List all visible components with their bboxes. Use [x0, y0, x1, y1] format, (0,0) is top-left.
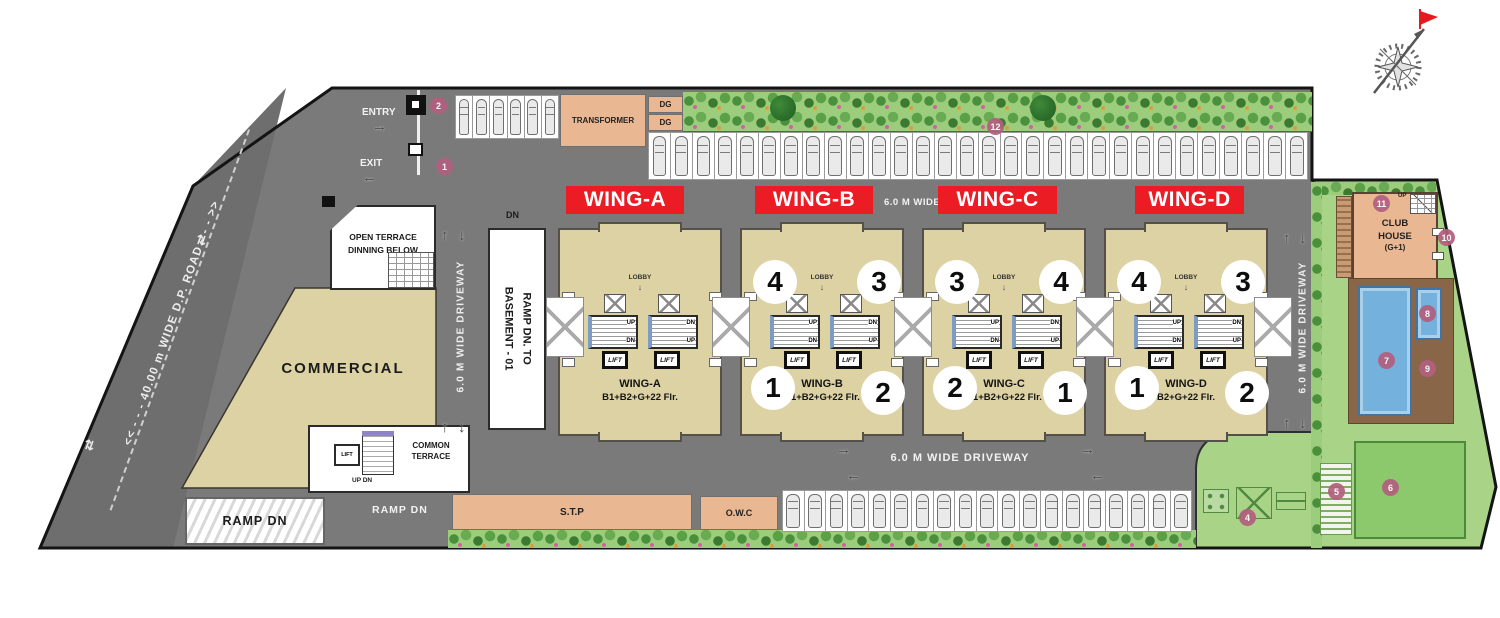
- gate-inner: [412, 101, 419, 108]
- wall-block: [322, 196, 335, 207]
- corridor-bridge: [1254, 297, 1292, 357]
- car-icon: [1045, 494, 1059, 528]
- parking-slot: [649, 133, 671, 179]
- car-icon: [1048, 136, 1062, 176]
- marker-4: 4: [1239, 509, 1256, 526]
- tree-icon: [770, 95, 796, 121]
- car-icon: [1153, 494, 1167, 528]
- stair-up-label: UP: [627, 320, 635, 326]
- traffic-arrow-icon: ↑: [441, 228, 449, 243]
- window-box: [744, 358, 757, 367]
- owc-label: O.W.C: [726, 508, 753, 518]
- compass-rose-icon: [1368, 5, 1454, 105]
- stair-up-label: UP: [991, 320, 999, 326]
- marker-5: 5: [1328, 483, 1345, 500]
- stair-landing-band: [362, 431, 394, 436]
- marker-7: 7: [1378, 352, 1395, 369]
- parking-slot: [1220, 133, 1242, 179]
- club-deck-hatch: [1336, 196, 1352, 278]
- marker-6: 6: [1382, 479, 1399, 496]
- parking-slot: [1149, 491, 1171, 531]
- driveway-label-bottom: 6.0 M WIDE DRIVEWAY: [855, 452, 1065, 464]
- window-box: [926, 358, 939, 367]
- parking-slot: [998, 491, 1020, 531]
- car-icon: [718, 136, 732, 176]
- car-icon: [762, 136, 776, 176]
- club-house-line-3: (G+1): [1385, 243, 1406, 254]
- parking-slot: [957, 133, 979, 179]
- parking-slot: [1041, 491, 1063, 531]
- unit-number-1: 1: [1115, 366, 1159, 410]
- lift-shaft-icon: [1204, 294, 1226, 313]
- wing-banner-wing-c: WING-C: [938, 186, 1057, 214]
- parking-slot: [715, 133, 737, 179]
- parking-bay-entry: [455, 95, 559, 139]
- unit-number-2: 2: [1225, 371, 1269, 415]
- club-house-line-2: HOUSE: [1378, 231, 1412, 244]
- car-icon: [1109, 494, 1123, 528]
- exit-label: EXIT: [360, 158, 382, 169]
- staircase-right: DNUP: [1194, 315, 1244, 349]
- parking-slot: [955, 491, 977, 531]
- car-icon: [1026, 136, 1040, 176]
- club-stair: [1410, 194, 1436, 214]
- traffic-arrow-icon: ↑: [441, 420, 449, 435]
- traffic-arrow-icon: ↓: [1299, 416, 1307, 431]
- parking-slot: [473, 96, 490, 138]
- common-terrace-label: COMMON TERRACE: [398, 440, 464, 462]
- car-icon: [1004, 136, 1018, 176]
- commercial-label: COMMERCIAL: [278, 360, 408, 377]
- lift-shaft-icon: [604, 294, 626, 313]
- stair-up-label: UP: [687, 338, 695, 344]
- lift-shaft-icon: [658, 294, 680, 313]
- parking-slot: [1044, 133, 1066, 179]
- wing-building-wing-d: LOBBY↓UPDNDNUPLIFTLIFTWING-DB2+G+22 Flr.…: [1104, 228, 1268, 436]
- ramp-to-basement-label: RAMP DN. TO BASEMENT - 01: [499, 234, 534, 424]
- car-icon: [1246, 136, 1260, 176]
- unit-number-4: 4: [753, 260, 797, 304]
- lift-box: LIFT: [966, 351, 992, 369]
- parking-slot: [1242, 133, 1264, 179]
- parking-slot: [934, 491, 956, 531]
- tree-icon: [1030, 95, 1056, 121]
- parking-slot: [490, 96, 507, 138]
- open-lawn: [1354, 441, 1466, 539]
- parking-slot: [869, 133, 891, 179]
- stair-dn-label: DN: [990, 338, 999, 344]
- car-icon: [851, 494, 865, 528]
- car-icon: [1158, 136, 1172, 176]
- stp-box: S.T.P: [452, 494, 692, 530]
- lift-box: LIFT: [784, 351, 810, 369]
- car-icon: [1092, 136, 1106, 176]
- parking-slot: [1001, 133, 1023, 179]
- parking-slot: [935, 133, 957, 179]
- traffic-arrow-icon: ←: [362, 170, 377, 185]
- stair-dn-label: DN: [626, 338, 635, 344]
- stair-dn-label: DN: [808, 338, 817, 344]
- corridor-bridge: [894, 297, 932, 357]
- car-icon: [1202, 136, 1216, 176]
- lift-shaft-icon: [840, 294, 862, 313]
- parking-slot: [759, 133, 781, 179]
- car-icon: [527, 99, 538, 135]
- parking-slot: [693, 133, 715, 179]
- parking-slot: [1106, 491, 1128, 531]
- car-icon: [1066, 494, 1080, 528]
- parking-slot: [1286, 133, 1307, 179]
- car-icon: [872, 136, 886, 176]
- car-icon: [1290, 136, 1304, 176]
- parking-slot: [848, 491, 870, 531]
- up-dn-label: UP DN: [352, 477, 372, 484]
- parking-slot: [912, 491, 934, 531]
- stair-dn-label: DN: [1172, 338, 1181, 344]
- lobby-down-arrow-icon: ↓: [560, 282, 720, 292]
- car-icon: [1224, 136, 1238, 176]
- unit-number-4: 4: [1117, 260, 1161, 304]
- common-terrace-line-1: COMMON: [412, 441, 449, 450]
- window-box: [1108, 358, 1121, 367]
- traffic-arrow-icon: →: [1080, 442, 1095, 457]
- stair-dn-label: DN: [1050, 320, 1059, 326]
- parking-slot: [525, 96, 542, 138]
- staircase-left: UPDN: [770, 315, 820, 349]
- car-icon: [938, 136, 952, 176]
- parking-slot: [1022, 133, 1044, 179]
- parking-slot: [781, 133, 803, 179]
- dg-box-1: DG: [648, 96, 683, 113]
- stair-up-label: UP: [1233, 338, 1241, 344]
- lift-box: LIFT: [654, 351, 680, 369]
- parking-slot: [977, 491, 999, 531]
- parking-slot: [1171, 491, 1192, 531]
- traffic-arrow-icon: ↑: [1283, 416, 1291, 431]
- lift-box: LIFT: [602, 351, 628, 369]
- parking-slot: [671, 133, 693, 179]
- car-icon: [830, 494, 844, 528]
- club-house-line-1: CLUB: [1382, 218, 1408, 231]
- car-icon: [510, 99, 521, 135]
- car-icon: [894, 494, 908, 528]
- stair-dn-label: DN: [686, 320, 695, 326]
- unit-number-2: 2: [861, 371, 905, 415]
- dg-label: DG: [660, 100, 672, 109]
- traffic-arrow-icon: ↓: [1299, 231, 1307, 246]
- car-icon: [959, 494, 973, 528]
- south-planting-strip: [448, 530, 1196, 548]
- parking-slot: [847, 133, 869, 179]
- play-equipment-icon: [1203, 489, 1229, 513]
- window-box: [1255, 358, 1268, 367]
- parking-slot: [783, 491, 805, 531]
- wing-floors-label: B1+B2+G+22 Flr.: [560, 392, 720, 403]
- lift-label: LIFT: [341, 452, 353, 458]
- staircase-right: DNUP: [830, 315, 880, 349]
- stp-label: S.T.P: [560, 507, 584, 518]
- parking-slot: [1110, 133, 1132, 179]
- wing-building-wing-c: LOBBY↓UPDNDNUPLIFTLIFTWING-CB1+B2+G+22 F…: [922, 228, 1086, 436]
- traffic-arrow-icon: ↑: [1283, 231, 1291, 246]
- dg-box-2: DG: [648, 114, 683, 131]
- wing-banner-wing-b: WING-B: [755, 186, 873, 214]
- corridor-bridge: [546, 297, 584, 357]
- marker-2: 2: [430, 97, 447, 114]
- stair-up-label: UP: [809, 320, 817, 326]
- lift-box: LIFT: [1018, 351, 1044, 369]
- parking-slot: [1066, 133, 1088, 179]
- parking-slot: [1128, 491, 1150, 531]
- parking-slot: [979, 133, 1001, 179]
- parking-slot: [542, 96, 558, 138]
- lift-box-terrace: LIFT: [334, 444, 360, 466]
- unit-number-3: 3: [935, 260, 979, 304]
- stair-up-label: UP: [1173, 320, 1181, 326]
- car-icon: [1114, 136, 1128, 176]
- car-icon: [916, 136, 930, 176]
- parking-slot: [805, 491, 827, 531]
- common-terrace-line-2: TERRACE: [412, 452, 451, 461]
- unit-number-1: 1: [1043, 371, 1087, 415]
- car-icon: [459, 99, 470, 135]
- stair-dn-label: DN: [868, 320, 877, 326]
- club-tab: [1432, 252, 1444, 260]
- wing-banner-wing-d: WING-D: [1135, 186, 1244, 214]
- parking-slot: [891, 491, 913, 531]
- traffic-arrow-icon: ↓: [458, 420, 466, 435]
- wing-name-label: WING-A: [560, 378, 720, 390]
- staircase-left: UPDN: [1134, 315, 1184, 349]
- compass-arrowhead: [1414, 29, 1424, 39]
- window-box: [891, 358, 904, 367]
- car-icon: [476, 99, 487, 135]
- lift-box: LIFT: [836, 351, 862, 369]
- parking-slot: [1063, 491, 1085, 531]
- parking-slot: [456, 96, 473, 138]
- car-icon: [545, 99, 556, 135]
- car-icon: [873, 494, 887, 528]
- north-flag-icon: [1420, 11, 1438, 25]
- car-icon: [808, 494, 822, 528]
- site-plan-canvas: << - - - 40.00 m WIDE D.P. ROAD - - - >>…: [0, 0, 1500, 618]
- parking-slot: [869, 491, 891, 531]
- traffic-arrow-icon: →: [836, 442, 851, 457]
- unit-number-2: 2: [933, 366, 977, 410]
- ramp-to-basement: RAMP DN. TO BASEMENT - 01: [488, 228, 546, 430]
- car-icon: [1174, 494, 1188, 528]
- car-icon: [1180, 136, 1194, 176]
- staircase-right: DNUP: [1012, 315, 1062, 349]
- wing-banner-wing-a: WING-A: [566, 186, 684, 214]
- parking-slot: [1088, 133, 1110, 179]
- marker-9: 9: [1419, 360, 1436, 377]
- terrace-stair: [388, 252, 434, 288]
- lift-box: LIFT: [1200, 351, 1226, 369]
- car-icon: [1023, 494, 1037, 528]
- marker-11: 11: [1373, 195, 1390, 212]
- ramp-dn-label: RAMP DN: [222, 514, 287, 528]
- traffic-arrow-icon: ←: [846, 468, 861, 483]
- parking-slot: [1264, 133, 1286, 179]
- parking-slot: [1176, 133, 1198, 179]
- driveway-label-left: 6.0 M WIDE DRIVEWAY: [456, 232, 467, 422]
- car-icon: [1268, 136, 1282, 176]
- marker-8: 8: [1419, 305, 1436, 322]
- terrace-stair-2: [362, 431, 394, 475]
- parking-slot: [1084, 491, 1106, 531]
- car-icon: [1002, 494, 1016, 528]
- lift-box: LIFT: [1148, 351, 1174, 369]
- staircase-right: DNUP: [648, 315, 698, 349]
- parking-slot: [826, 491, 848, 531]
- owc-box: O.W.C: [700, 496, 778, 530]
- marker-1: 1: [436, 158, 453, 175]
- car-icon: [916, 494, 930, 528]
- swimming-pool: [1358, 286, 1412, 416]
- window-box: [562, 358, 575, 367]
- traffic-arrow-icon: ←: [1090, 468, 1105, 483]
- car-icon: [697, 136, 711, 176]
- window-box: [1073, 358, 1086, 367]
- car-icon: [850, 136, 864, 176]
- marker-12: 12: [987, 118, 1004, 135]
- gate-box-icon: [408, 143, 423, 156]
- parking-row-north: [648, 132, 1308, 180]
- car-icon: [653, 136, 667, 176]
- car-icon: [786, 494, 800, 528]
- car-icon: [493, 99, 504, 135]
- car-icon: [784, 136, 798, 176]
- transformer-box: TRANSFORMER: [560, 94, 646, 147]
- wing-building-wing-b: LOBBY↓UPDNDNUPLIFTLIFTWING-BB1+B2+G+22 F…: [740, 228, 904, 436]
- car-icon: [894, 136, 908, 176]
- unit-number-1: 1: [751, 366, 795, 410]
- stair-dn-label: DN: [1232, 320, 1241, 326]
- ramp-line-2: BASEMENT - 01: [503, 287, 515, 371]
- car-icon: [980, 494, 994, 528]
- ramp-dn-road-label: RAMP DN: [372, 504, 428, 516]
- corridor-bridge: [712, 297, 750, 357]
- parking-slot: [891, 133, 913, 179]
- open-terrace-line-1: OPEN TERRACE: [349, 232, 417, 242]
- staircase-left: UPDN: [588, 315, 638, 349]
- driveway-label-right: 6.0 M WIDE DRIVEWAY: [1298, 233, 1309, 423]
- corridor-bridge: [1076, 297, 1114, 357]
- staircase-left: UPDN: [952, 315, 1002, 349]
- stair-up-label: UP: [869, 338, 877, 344]
- parking-slot: [737, 133, 759, 179]
- car-icon: [937, 494, 951, 528]
- lobby-label: LOBBY: [560, 274, 720, 281]
- dg-label: DG: [660, 118, 672, 127]
- dn-label: DN: [506, 210, 519, 220]
- car-icon: [1088, 494, 1102, 528]
- parking-row-south: [782, 490, 1192, 532]
- car-icon: [1136, 136, 1150, 176]
- car-icon: [828, 136, 842, 176]
- ramp-line-1: RAMP DN. TO: [521, 292, 533, 364]
- parking-slot: [803, 133, 825, 179]
- parking-slot: [1132, 133, 1154, 179]
- car-icon: [1131, 494, 1145, 528]
- parking-slot: [825, 133, 847, 179]
- stair-up-label: UP: [1051, 338, 1059, 344]
- parking-slot: [1198, 133, 1220, 179]
- marker-10: 10: [1438, 229, 1455, 246]
- car-icon: [982, 136, 996, 176]
- parking-slot: [913, 133, 935, 179]
- car-icon: [675, 136, 689, 176]
- lift-shaft-icon: [1022, 294, 1044, 313]
- bench-icon: [1276, 492, 1306, 510]
- transformer-label: TRANSFORMER: [572, 116, 634, 125]
- traffic-arrow-icon: →: [372, 119, 387, 134]
- car-icon: [1070, 136, 1084, 176]
- traffic-arrow-icon: ↓: [458, 228, 466, 243]
- parking-slot: [1154, 133, 1176, 179]
- car-icon: [740, 136, 754, 176]
- club-up-label: UP: [1398, 193, 1406, 199]
- car-icon: [960, 136, 974, 176]
- window-box: [709, 358, 722, 367]
- parking-slot: [1020, 491, 1042, 531]
- entry-gate-icon: [406, 95, 426, 115]
- ramp-dn-hatched: RAMP DN: [185, 497, 325, 545]
- car-icon: [806, 136, 820, 176]
- entry-label: ENTRY: [362, 107, 396, 118]
- parking-slot: [508, 96, 525, 138]
